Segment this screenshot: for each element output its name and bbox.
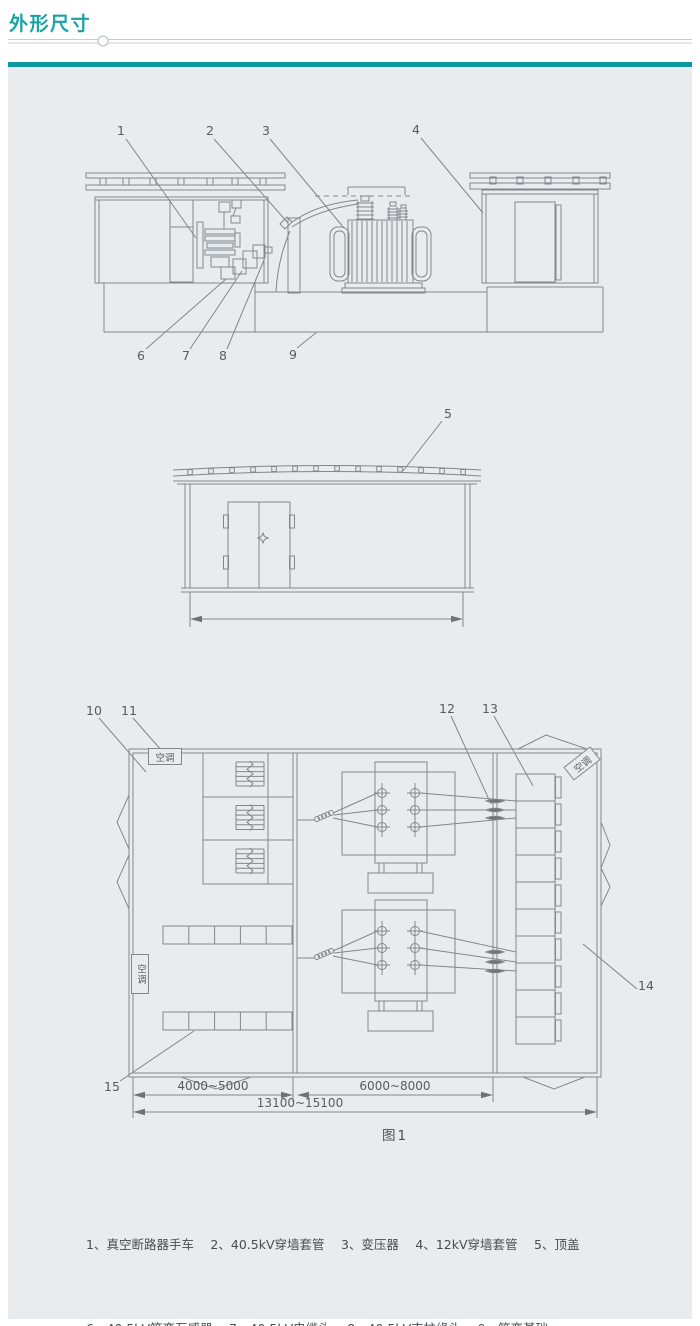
callout-5: 5 [437, 406, 459, 421]
ac-label-top-left: 空调 [148, 748, 182, 765]
ac-label-left-wall: 空调 [131, 954, 149, 994]
callout-8: 8 [212, 348, 234, 363]
catalog-page: 外形尺寸 [0, 0, 700, 1326]
header-rule [8, 36, 692, 46]
callout-13: 13 [479, 701, 501, 716]
legend-row-1: 1、真空断路器手车 2、40.5kV穿墙套管 3、变压器 4、12kV穿墙套管 … [86, 1231, 646, 1259]
accent-bar [8, 62, 692, 67]
content-panel [8, 67, 692, 1319]
dimension-total: 13100~15100 [235, 1096, 365, 1110]
legend-row-2: 6、40.5kV箱变互感器 7、40.5kV电缆头 8、40.5kV支柱缘头 9… [86, 1315, 646, 1326]
callout-12: 12 [436, 701, 458, 716]
dimension-left-room: 4000~5000 [153, 1079, 273, 1093]
legend: 1、真空断路器手车 2、40.5kV穿墙套管 3、变压器 4、12kV穿墙套管 … [86, 1176, 646, 1326]
dimension-mid-room: 6000~8000 [335, 1079, 455, 1093]
page-title: 外形尺寸 [9, 9, 91, 36]
callout-15: 15 [101, 1079, 123, 1094]
callout-2: 2 [199, 123, 221, 138]
callout-6: 6 [130, 348, 152, 363]
callout-10: 10 [83, 703, 105, 718]
callout-3: 3 [255, 123, 277, 138]
callout-4: 4 [405, 122, 427, 137]
callout-7: 7 [175, 348, 197, 363]
callout-1: 1 [110, 123, 132, 138]
callout-14: 14 [635, 978, 657, 993]
callout-9: 9 [282, 347, 304, 362]
callout-11: 11 [118, 703, 140, 718]
figure-caption: 图1 [365, 1124, 425, 1144]
